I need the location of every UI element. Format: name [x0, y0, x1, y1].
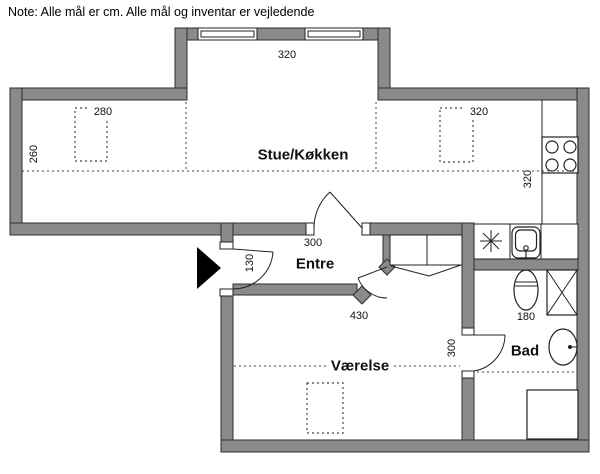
- dim-bathroom-width: 180: [517, 311, 535, 323]
- dim-kitchen-depth: 320: [522, 170, 534, 188]
- bath-door-jamb-bottom: [462, 371, 474, 378]
- wall-bath-top: [474, 259, 578, 270]
- washbasin-icon: [549, 329, 578, 365]
- wall-bottom: [221, 440, 589, 452]
- dim-bedroom-width: 430: [350, 310, 368, 322]
- shower-icon: [547, 270, 577, 315]
- toilet-icon: [514, 270, 538, 310]
- entrance-door-jamb-top: [220, 242, 233, 249]
- wall-entre-top-right: [362, 223, 474, 235]
- stove-icon: [542, 137, 578, 173]
- drain-asterisk-icon: [480, 230, 502, 252]
- wall-top-right: [378, 88, 589, 100]
- wall-living-bottom: [10, 223, 233, 235]
- wall-divider-upper: [462, 223, 474, 335]
- floorplan-drawing: Stue/Køkken Entre Værelse Bad 320 280 32…: [0, 0, 600, 474]
- entrance-arrow-icon: [197, 247, 221, 289]
- wall-entre-bottom: [233, 284, 357, 295]
- wall-top-left: [10, 88, 187, 100]
- floorplan-page: Note: Alle mål er cm. Alle mål og invent…: [0, 0, 600, 474]
- kitchen-sink-icon: [512, 227, 540, 258]
- window-right-glass: [308, 31, 360, 37]
- living-door-jamb-left: [306, 223, 314, 235]
- wall-entre-left-lower: [221, 289, 233, 452]
- wall-entre-top-left: [233, 223, 314, 235]
- living-room-door-icon: [314, 192, 362, 228]
- dim-bay-window: 320: [278, 49, 296, 61]
- window-left-glass: [201, 31, 254, 37]
- dim-living-right-item: 320: [470, 106, 488, 118]
- dim-living-left-item: 280: [94, 106, 112, 118]
- dim-living-left-depth: 260: [28, 145, 40, 163]
- wall-left: [10, 88, 22, 235]
- entrance-label: Entre: [296, 256, 334, 273]
- dim-entrance-width: 300: [304, 237, 322, 249]
- living-kitchen-label: Stue/Køkken: [258, 147, 349, 164]
- bathroom-door-icon: [468, 335, 505, 371]
- bath-door-jamb-top: [462, 328, 474, 335]
- bathroom-label: Bad: [511, 343, 539, 360]
- closet: [390, 235, 462, 276]
- closet-door-icon: [391, 265, 461, 276]
- wall-divider-lower: [462, 371, 474, 440]
- bedroom-furniture: [307, 383, 343, 433]
- bath-cabinet: [527, 390, 578, 439]
- wall-right: [577, 88, 589, 452]
- closet-body: [390, 235, 462, 265]
- bedroom-label: Værelse: [331, 358, 389, 375]
- living-door-jamb-right: [362, 223, 370, 235]
- entrance-door-jamb-bottom: [220, 289, 233, 296]
- dim-bedroom-depth: 300: [446, 339, 458, 357]
- dim-entrance-door: 130: [244, 254, 256, 272]
